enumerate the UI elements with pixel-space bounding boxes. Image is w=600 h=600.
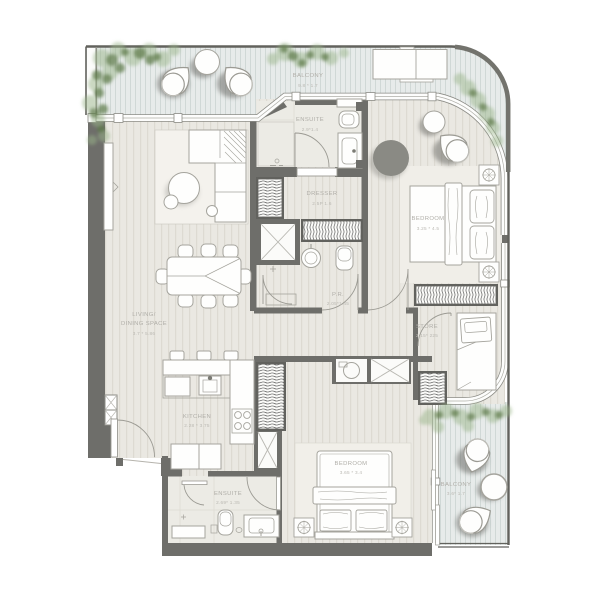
svg-text:DRESSER: DRESSER xyxy=(307,191,338,197)
svg-text:P.R.: P.R. xyxy=(332,292,344,298)
svg-text:2.5P 1.6: 2.5P 1.6 xyxy=(312,201,332,206)
svg-text:KITCHEN: KITCHEN xyxy=(183,414,211,420)
svg-text:BEDROOM: BEDROOM xyxy=(335,461,368,467)
svg-text:LIVING/: LIVING/ xyxy=(132,312,155,318)
svg-text:3.65 * 3.4: 3.65 * 3.4 xyxy=(340,470,363,475)
svg-text:9.8 * 1.7: 9.8 * 1.7 xyxy=(298,83,318,88)
svg-text:2.69* 1.35: 2.69* 1.35 xyxy=(216,500,240,505)
svg-text:ENSUITE: ENSUITE xyxy=(214,491,242,497)
svg-text:2.15* 225: 2.15* 225 xyxy=(416,333,438,338)
svg-text:BEDROOM: BEDROOM xyxy=(412,216,445,222)
svg-text:BALCONY: BALCONY xyxy=(293,73,324,79)
svg-text:2.05*1.45: 2.05*1.45 xyxy=(327,301,349,306)
svg-text:DINING SPACE: DINING SPACE xyxy=(121,321,167,327)
svg-text:BALCONY: BALCONY xyxy=(441,482,472,488)
svg-text:ENSUITE: ENSUITE xyxy=(296,117,324,123)
svg-text:3.7 * 5.86: 3.7 * 5.86 xyxy=(133,331,156,336)
svg-text:2.28 * 3.75: 2.28 * 3.75 xyxy=(184,423,210,428)
svg-text:STORE: STORE xyxy=(416,324,438,330)
svg-text:3.6* 1.7: 3.6* 1.7 xyxy=(447,491,465,496)
svg-text:3.25 * 4.5: 3.25 * 4.5 xyxy=(417,226,440,231)
svg-text:2.9*1.4: 2.9*1.4 xyxy=(302,127,319,132)
